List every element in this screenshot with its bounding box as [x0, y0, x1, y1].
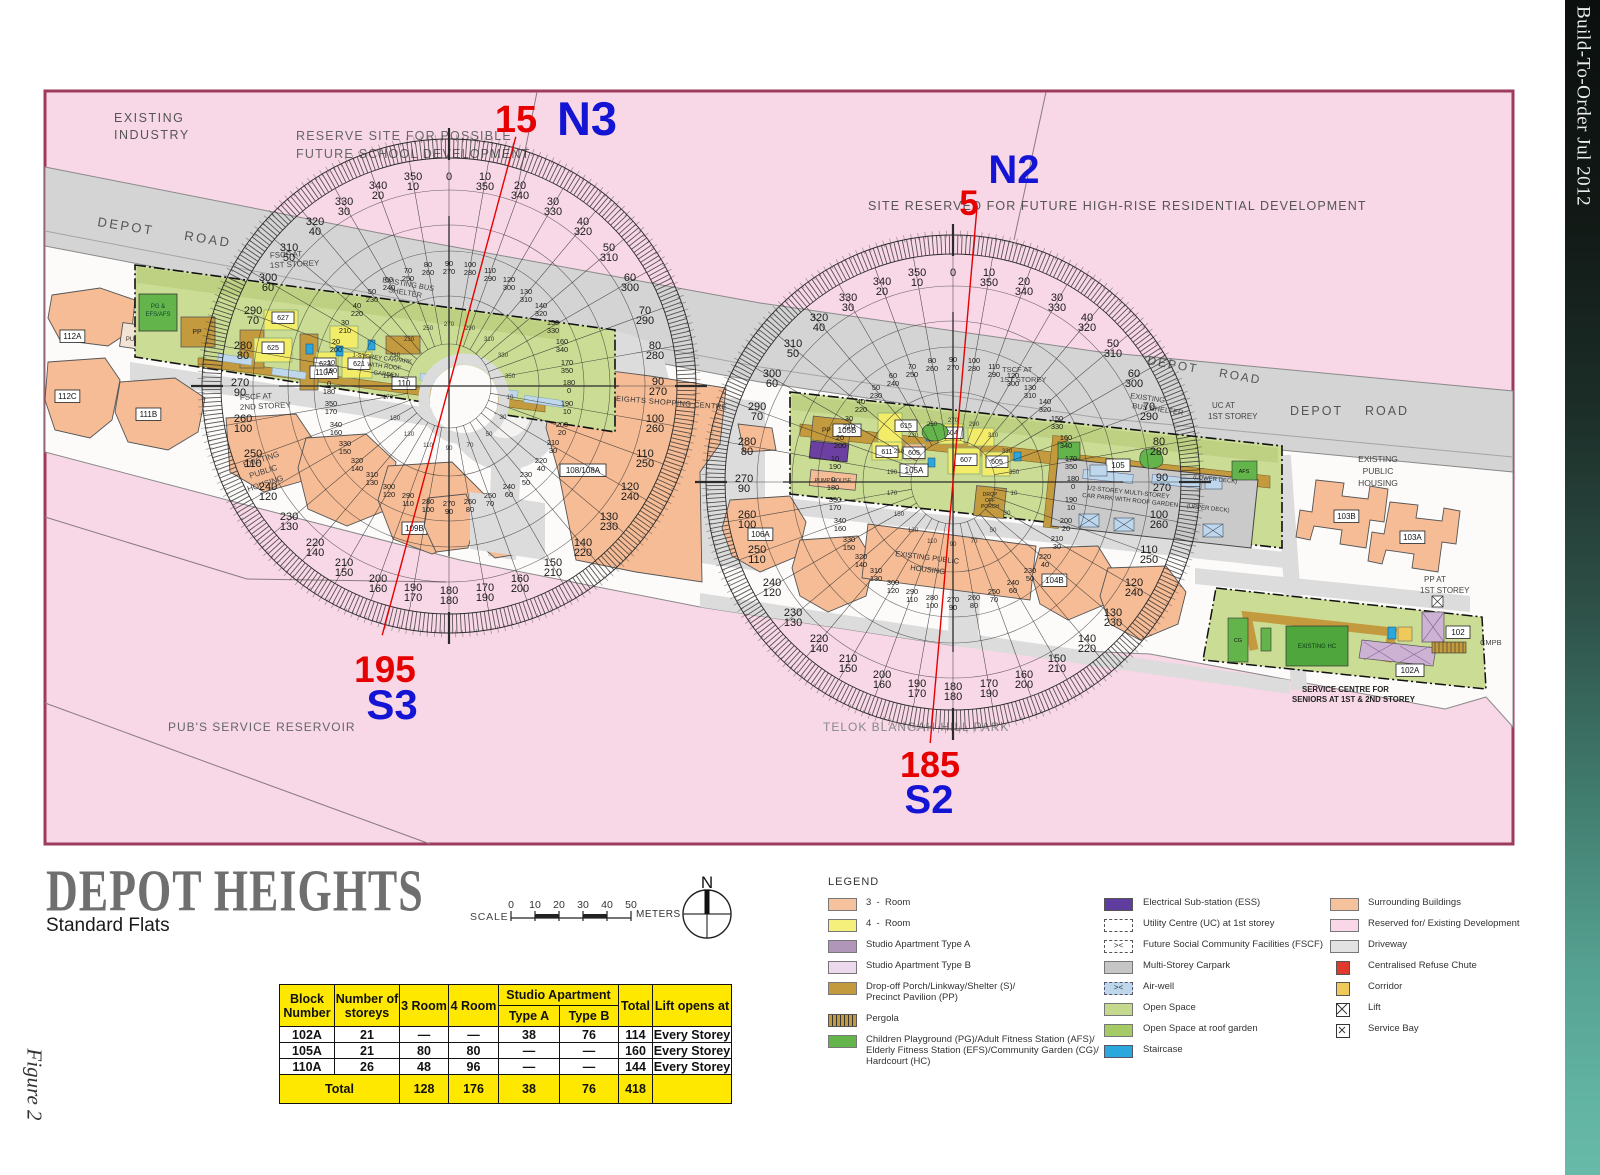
svg-text:0: 0 [446, 171, 452, 183]
svg-text:320: 320 [535, 309, 547, 318]
svg-text:0: 0 [1071, 482, 1075, 491]
svg-text:140: 140 [855, 560, 867, 569]
svg-text:270: 270 [444, 321, 455, 328]
svg-text:30: 30 [1004, 510, 1011, 517]
svg-text:190: 190 [980, 688, 998, 700]
svg-text:EFS/AFS: EFS/AFS [145, 312, 170, 318]
svg-text:260: 260 [422, 268, 434, 277]
svg-text:210: 210 [339, 326, 351, 335]
svg-text:50: 50 [522, 478, 530, 487]
svg-text:N: N [701, 873, 713, 892]
svg-text:160: 160 [873, 679, 891, 691]
svg-text:50: 50 [1026, 574, 1034, 583]
svg-text:240: 240 [887, 379, 899, 388]
svg-text:200: 200 [1015, 679, 1033, 691]
svg-text:40: 40 [537, 464, 545, 473]
svg-text:30: 30 [1053, 542, 1061, 551]
svg-text:611: 611 [881, 449, 892, 456]
svg-text:180: 180 [827, 483, 839, 492]
svg-text:5: 5 [959, 184, 978, 223]
svg-text:EXISTING: EXISTING [1358, 454, 1398, 464]
svg-text:220: 220 [1078, 643, 1096, 655]
svg-text:330: 330 [1051, 422, 1063, 431]
svg-text:210: 210 [544, 567, 562, 579]
svg-text:40: 40 [1041, 560, 1049, 569]
svg-text:112C: 112C [58, 392, 77, 401]
svg-text:120: 120 [763, 587, 781, 599]
svg-text:170: 170 [325, 407, 337, 416]
svg-text:103B: 103B [1337, 512, 1356, 521]
svg-text:230: 230 [870, 391, 882, 400]
svg-text:340: 340 [1015, 286, 1033, 298]
svg-text:130: 130 [870, 574, 882, 583]
svg-text:621: 621 [353, 361, 365, 368]
svg-text:80: 80 [237, 350, 249, 362]
svg-text:260: 260 [646, 423, 664, 435]
svg-text:330: 330 [544, 206, 562, 218]
svg-text:310: 310 [1104, 348, 1122, 360]
svg-text:106A: 106A [751, 530, 770, 539]
svg-text:70: 70 [467, 442, 474, 449]
svg-text:350: 350 [505, 373, 516, 380]
svg-text:300: 300 [503, 283, 515, 292]
svg-text:EXISTING HC: EXISTING HC [1298, 644, 1337, 650]
svg-text:AFS: AFS [1239, 469, 1250, 475]
svg-text:210: 210 [1048, 663, 1066, 675]
svg-text:310: 310 [600, 252, 618, 264]
svg-text:210: 210 [894, 448, 905, 455]
svg-text:170: 170 [383, 394, 394, 401]
svg-text:230: 230 [908, 432, 919, 439]
svg-text:INDUSTRY: INDUSTRY [114, 128, 190, 142]
svg-text:40: 40 [813, 322, 825, 334]
svg-text:150: 150 [335, 567, 353, 579]
svg-text:110: 110 [906, 595, 918, 604]
svg-text:40: 40 [309, 226, 321, 238]
svg-text:190: 190 [383, 373, 394, 380]
svg-text:PUB'S SERVICE RESERVOIR: PUB'S SERVICE RESERVOIR [168, 720, 356, 734]
svg-text:350: 350 [476, 181, 494, 193]
svg-text:350: 350 [1009, 469, 1020, 476]
svg-text:280: 280 [968, 364, 980, 373]
svg-text:627: 627 [277, 315, 289, 322]
svg-text:250: 250 [636, 458, 654, 470]
svg-text:100: 100 [234, 423, 252, 435]
svg-text:210: 210 [390, 352, 401, 359]
svg-text:70: 70 [247, 315, 259, 327]
svg-text:210: 210 [843, 422, 855, 431]
svg-text:140: 140 [351, 464, 363, 473]
svg-text:310: 310 [520, 295, 532, 304]
svg-text:112A: 112A [63, 332, 82, 341]
svg-text:10: 10 [1011, 490, 1018, 497]
svg-text:350: 350 [1065, 462, 1077, 471]
svg-text:180: 180 [440, 595, 458, 607]
svg-text:N2: N2 [988, 148, 1039, 192]
svg-text:230: 230 [600, 521, 618, 533]
svg-text:SCALE: SCALE [470, 911, 508, 923]
svg-text:102A: 102A [1401, 666, 1420, 675]
svg-text:70: 70 [486, 499, 494, 508]
svg-text:170: 170 [829, 503, 841, 512]
svg-text:1ST STOREY: 1ST STOREY [1420, 586, 1470, 595]
svg-text:CMPB: CMPB [1480, 638, 1502, 647]
svg-text:190: 190 [887, 469, 898, 476]
svg-text:1ST STOREY: 1ST STOREY [1208, 412, 1258, 421]
svg-text:90: 90 [446, 445, 453, 452]
svg-text:0: 0 [508, 899, 514, 911]
svg-text:120: 120 [887, 586, 899, 595]
svg-text:10: 10 [1067, 503, 1075, 512]
svg-text:340: 340 [556, 345, 568, 354]
svg-text:20: 20 [553, 899, 565, 911]
svg-text:10: 10 [507, 394, 514, 401]
svg-text:20: 20 [558, 428, 566, 437]
svg-text:110: 110 [927, 538, 937, 545]
svg-text:90: 90 [949, 603, 957, 612]
svg-text:320: 320 [574, 226, 592, 238]
svg-text:150: 150 [843, 543, 855, 552]
svg-text:60: 60 [1009, 586, 1017, 595]
svg-text:320: 320 [1078, 322, 1096, 334]
svg-text:40: 40 [601, 899, 613, 911]
svg-text:270: 270 [1153, 482, 1171, 494]
svg-text:310: 310 [988, 432, 999, 439]
svg-text:607: 607 [960, 457, 972, 464]
svg-text:15: 15 [495, 99, 537, 141]
svg-text:280: 280 [646, 350, 664, 362]
svg-text:270: 270 [947, 363, 959, 372]
svg-text:170: 170 [908, 688, 926, 700]
svg-text:250: 250 [927, 421, 938, 428]
svg-text:10: 10 [407, 181, 419, 193]
svg-text:120: 120 [259, 491, 277, 503]
svg-text:240: 240 [1125, 587, 1143, 599]
svg-text:280: 280 [1150, 446, 1168, 458]
svg-text:CG: CG [1234, 638, 1242, 644]
svg-text:60: 60 [766, 378, 778, 390]
svg-text:0: 0 [950, 267, 956, 279]
svg-text:130: 130 [280, 521, 298, 533]
svg-text:80: 80 [466, 505, 474, 514]
svg-text:METERS: METERS [636, 909, 681, 920]
svg-text:10: 10 [529, 899, 541, 911]
svg-text:10: 10 [563, 407, 571, 416]
svg-text:200: 200 [330, 345, 342, 354]
svg-text:UC AT: UC AT [1212, 401, 1235, 410]
svg-text:10: 10 [911, 277, 923, 289]
svg-text:270: 270 [948, 417, 959, 424]
svg-text:50: 50 [990, 527, 997, 534]
svg-text:SERVICE CENTRE FOR: SERVICE CENTRE FOR [1302, 685, 1389, 694]
svg-text:60: 60 [505, 490, 513, 499]
svg-text:310: 310 [484, 336, 495, 343]
svg-text:340: 340 [511, 190, 529, 202]
svg-text:160: 160 [834, 524, 846, 533]
svg-text:350: 350 [561, 366, 573, 375]
svg-text:160: 160 [369, 583, 387, 595]
svg-text:250: 250 [402, 274, 414, 283]
svg-text:230: 230 [404, 336, 415, 343]
svg-text:220: 220 [351, 309, 363, 318]
svg-text:90: 90 [234, 387, 246, 399]
svg-text:625: 625 [267, 345, 279, 352]
svg-text:250: 250 [423, 325, 434, 332]
svg-text:200: 200 [834, 441, 846, 450]
svg-text:80: 80 [741, 446, 753, 458]
svg-text:100: 100 [926, 601, 938, 610]
svg-text:30: 30 [549, 446, 557, 455]
svg-text:104B: 104B [1045, 576, 1064, 585]
svg-text:109B: 109B [405, 524, 424, 533]
svg-text:150: 150 [894, 511, 905, 518]
svg-text:230: 230 [1104, 617, 1122, 629]
svg-text:100: 100 [422, 505, 434, 514]
svg-text:N3: N3 [557, 92, 617, 145]
svg-text:30: 30 [577, 899, 589, 911]
svg-text:250: 250 [1140, 554, 1158, 566]
svg-text:300: 300 [1007, 379, 1019, 388]
svg-text:350: 350 [980, 277, 998, 289]
svg-text:605: 605 [908, 450, 920, 457]
svg-text:170: 170 [404, 592, 422, 604]
svg-text:HOUSING: HOUSING [1358, 478, 1398, 488]
svg-text:EXISTING: EXISTING [114, 111, 184, 125]
svg-text:111B: 111B [140, 410, 158, 419]
svg-text:70: 70 [990, 595, 998, 604]
svg-text:DEPOT ROAD: DEPOT ROAD [1290, 404, 1409, 418]
svg-text:70: 70 [751, 411, 763, 423]
svg-text:60: 60 [262, 282, 274, 294]
svg-text:300: 300 [1125, 378, 1143, 390]
svg-text:290: 290 [636, 315, 654, 327]
svg-text:30: 30 [842, 302, 854, 314]
svg-text:103A: 103A [1403, 533, 1422, 542]
svg-text:PP AT: PP AT [1424, 575, 1446, 584]
svg-text:190: 190 [325, 366, 337, 375]
svg-text:80: 80 [970, 601, 978, 610]
svg-text:150: 150 [339, 447, 351, 456]
svg-text:0: 0 [567, 386, 571, 395]
svg-text:270: 270 [443, 267, 455, 276]
svg-text:130: 130 [908, 527, 919, 534]
svg-text:S3: S3 [366, 681, 417, 728]
svg-text:330: 330 [1048, 302, 1066, 314]
svg-text:280: 280 [464, 268, 476, 277]
svg-text:30: 30 [500, 414, 507, 421]
svg-text:180: 180 [323, 387, 335, 396]
svg-text:30: 30 [338, 206, 350, 218]
svg-text:50: 50 [486, 431, 493, 438]
svg-text:290: 290 [465, 325, 476, 332]
svg-text:220: 220 [855, 405, 867, 414]
svg-text:PUBLIC: PUBLIC [1363, 466, 1394, 476]
svg-text:290: 290 [1140, 411, 1158, 423]
svg-text:90: 90 [950, 541, 957, 548]
svg-text:50: 50 [787, 348, 799, 360]
svg-text:120: 120 [383, 490, 395, 499]
svg-text:330: 330 [547, 326, 559, 335]
svg-text:150: 150 [839, 663, 857, 675]
svg-text:150: 150 [390, 415, 401, 422]
svg-text:260: 260 [1150, 519, 1168, 531]
svg-text:PP: PP [192, 329, 202, 336]
svg-text:320: 320 [1039, 405, 1051, 414]
svg-text:180: 180 [944, 691, 962, 703]
svg-text:110: 110 [748, 554, 766, 566]
svg-text:160: 160 [330, 428, 342, 437]
svg-text:20: 20 [1062, 524, 1070, 533]
svg-text:140: 140 [810, 643, 828, 655]
svg-text:130: 130 [404, 431, 415, 438]
svg-text:90: 90 [445, 507, 453, 516]
svg-text:140: 140 [306, 547, 324, 559]
svg-text:100: 100 [738, 519, 756, 531]
svg-text:290: 290 [988, 370, 1000, 379]
svg-text:S2: S2 [905, 778, 954, 822]
svg-text:250: 250 [906, 370, 918, 379]
svg-text:130: 130 [366, 478, 378, 487]
svg-text:170: 170 [887, 490, 898, 497]
svg-text:PG &: PG & [151, 304, 165, 310]
svg-text:330: 330 [1002, 448, 1013, 455]
svg-text:190: 190 [476, 592, 494, 604]
svg-text:290: 290 [484, 274, 496, 283]
svg-text:220: 220 [574, 547, 592, 559]
svg-text:270: 270 [649, 386, 667, 398]
svg-text:102: 102 [1451, 628, 1465, 637]
svg-text:130: 130 [784, 617, 802, 629]
svg-text:SITE RESERVED FOR FUTURE H: SITE RESERVED FOR FUTURE HIGH-RISE RESID… [868, 199, 1367, 213]
svg-text:260: 260 [926, 364, 938, 373]
svg-text:110: 110 [402, 499, 414, 508]
svg-text:290: 290 [969, 421, 980, 428]
svg-text:105A: 105A [905, 466, 924, 475]
svg-text:230: 230 [366, 295, 378, 304]
svg-text:240: 240 [621, 491, 639, 503]
svg-text:310: 310 [1024, 391, 1036, 400]
svg-text:90: 90 [738, 483, 750, 495]
svg-text:240: 240 [383, 283, 395, 292]
svg-text:190: 190 [829, 462, 841, 471]
svg-text:330: 330 [498, 352, 509, 359]
svg-text:300: 300 [621, 282, 639, 294]
svg-text:20: 20 [876, 286, 888, 298]
svg-text:200: 200 [511, 583, 529, 595]
svg-text:70: 70 [971, 538, 978, 545]
svg-text:110: 110 [244, 458, 262, 470]
svg-text:340: 340 [1060, 441, 1072, 450]
svg-text:20: 20 [372, 190, 384, 202]
svg-text:SENIORS AT 1ST & 2ND STOREY: SENIORS AT 1ST & 2ND STOREY [1292, 695, 1416, 704]
svg-text:50: 50 [283, 252, 295, 264]
